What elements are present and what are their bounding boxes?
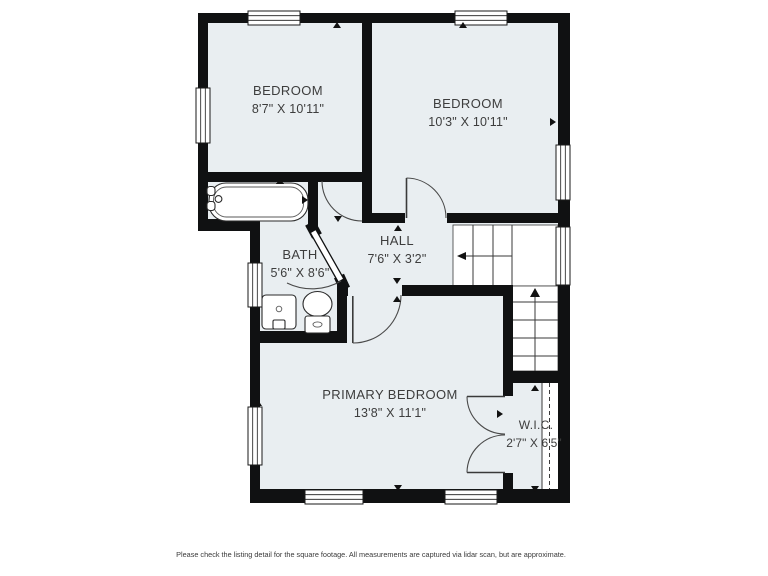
sink-icon	[262, 295, 296, 329]
room-dims-wic: 2'7" X 6'5"	[506, 436, 562, 450]
window-bedroom1-left	[196, 88, 210, 143]
window-primary-left	[248, 407, 262, 465]
window-bedroom1-top	[248, 11, 300, 25]
wall-wic-top	[503, 371, 570, 383]
room-dims-hall: 7'6" X 3'2"	[368, 252, 427, 266]
wall-wic-left-lower	[503, 473, 513, 503]
footer-disclaimer: Please check the listing detail for the …	[176, 550, 566, 559]
tub-handle-top	[207, 187, 215, 196]
room-label-bedroom1: BEDROOM	[253, 83, 323, 98]
wall-bath-bottom	[250, 331, 347, 343]
floor-plan-drawing: BEDROOM 8'7" X 10'11" BEDROOM 10'3" X 10…	[0, 0, 768, 576]
room-dims-primary: 13'8" X 11'1"	[354, 406, 426, 420]
tub-handle-bottom	[207, 202, 215, 211]
room-label-bath: BATH	[282, 247, 317, 262]
room-label-primary: PRIMARY BEDROOM	[322, 387, 458, 402]
wall-hall-bottom-right	[402, 285, 512, 296]
toilet-icon	[303, 292, 332, 334]
toilet-tank	[305, 316, 330, 333]
room-label-bedroom2: BEDROOM	[433, 96, 503, 111]
wall-bottom	[250, 489, 570, 503]
room-label-hall: HALL	[380, 233, 414, 248]
window-bedroom2-right	[556, 145, 570, 200]
tub-faucet	[215, 196, 222, 203]
floor-plan-page: BEDROOM 8'7" X 10'11" BEDROOM 10'3" X 10…	[0, 0, 768, 576]
bathtub-icon	[207, 183, 308, 221]
window-primary-bottom-right	[445, 490, 497, 504]
sink-faucet	[273, 320, 285, 329]
wall-between-bedrooms	[362, 13, 372, 223]
room-label-wic: W.I.C.	[519, 418, 553, 432]
wall-bedroom1-bottom	[198, 172, 372, 182]
room-dims-bath: 5'6" X 8'6"	[271, 266, 330, 280]
room-dims-bedroom1: 8'7" X 10'11"	[252, 102, 324, 116]
room-dims-bedroom2: 10'3" X 10'11"	[428, 115, 507, 129]
window-stairs-right	[556, 227, 570, 285]
wall-bedroom2-bottom-left	[362, 213, 405, 223]
toilet-bowl	[303, 292, 332, 317]
window-bath-left	[248, 263, 262, 307]
window-primary-bottom-left	[305, 490, 363, 504]
wall-tub-alcove-right	[308, 182, 318, 227]
